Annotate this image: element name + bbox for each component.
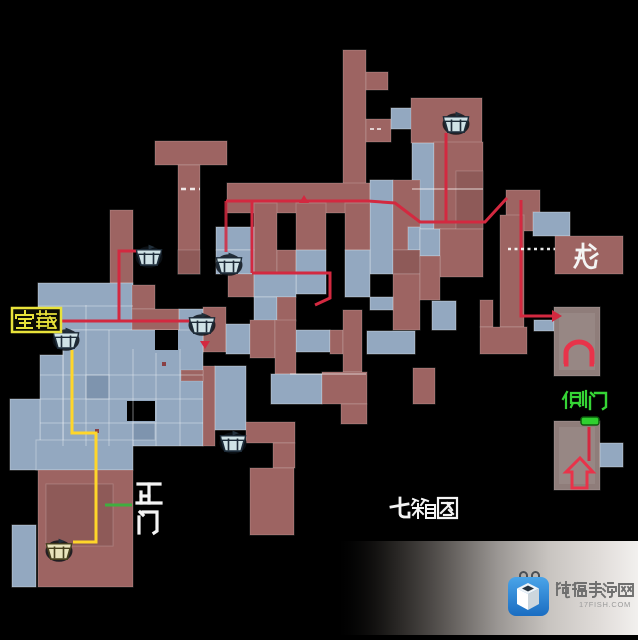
svg-text:17FISH.COM: 17FISH.COM: [579, 600, 631, 609]
